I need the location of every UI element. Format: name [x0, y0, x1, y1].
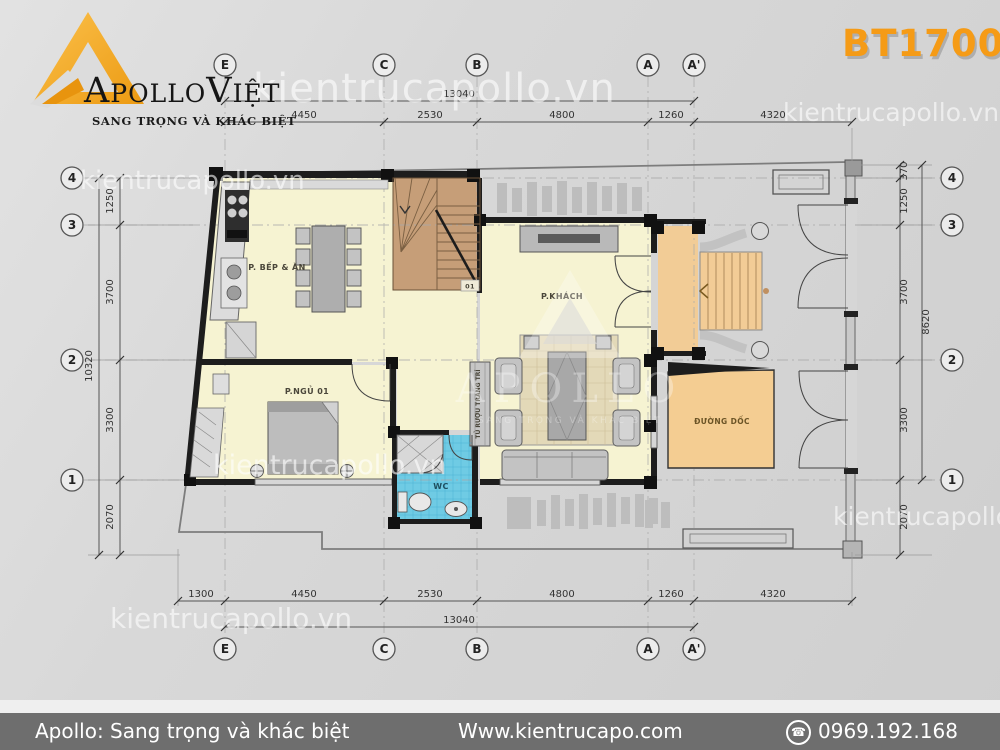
- rear-gate-leaf: [799, 371, 848, 420]
- brand-tagline: SANG TRỌNG VÀ KHÁC BIỆT: [92, 114, 296, 128]
- dim-right-2: 1250: [899, 188, 910, 213]
- brand-part-viet: Việt: [206, 71, 280, 111]
- grid-col-A-top: A: [643, 58, 653, 72]
- dim-bottom-5: 1260: [658, 589, 683, 600]
- dim-left-4: 2070: [105, 504, 116, 529]
- grid-row-4-right: 4: [948, 171, 956, 185]
- planter-box: [683, 529, 793, 548]
- dim-top-4: 1260: [658, 110, 683, 121]
- footer-website: Www.kientrucapo.com: [458, 719, 683, 743]
- project-code: BT17006: [842, 22, 1000, 65]
- grid-col-B-bottom: B: [472, 642, 481, 656]
- footer-bar: Apollo: Sang trọng và khác biệt Www.kien…: [0, 713, 1000, 750]
- dim-bottom-6: 4320: [760, 589, 785, 600]
- brand-name: ApolloViệt: [84, 74, 280, 109]
- dining-table: [312, 226, 345, 312]
- watermark-brand: APOLLO SANG TRỌNG VÀ KHÁC BIỆT: [420, 268, 720, 426]
- watermark-url: kientrucapollo.v: [833, 502, 1000, 531]
- dim-bottom-2: 4450: [291, 589, 316, 600]
- watermark-url: kientrucapollo.vn: [110, 602, 352, 635]
- side-gate-leaf: [798, 205, 848, 255]
- grid-col-E-bottom: E: [221, 642, 229, 656]
- toilet: [409, 493, 431, 511]
- tv: [538, 234, 600, 243]
- brand-part-apollo: Apollo: [84, 71, 206, 111]
- grid-row-2-left: 2: [68, 353, 76, 367]
- dim-left-2: 3700: [105, 279, 116, 304]
- side-gate-leaf: [798, 258, 848, 308]
- dim-right-total: 8620: [921, 309, 932, 334]
- dim-right-4: 3300: [899, 407, 910, 432]
- grid-row-3-right: 3: [948, 218, 956, 232]
- dim-left-3: 3300: [105, 407, 116, 432]
- watermark-triangle-icon: [515, 268, 625, 360]
- grid-col-A-bottom: A: [643, 642, 653, 656]
- floor-plan-page: 01: [0, 0, 1000, 750]
- grid-col-C-bottom: C: [380, 642, 389, 656]
- dim-bottom-4: 4800: [549, 589, 574, 600]
- wc-label: WC: [433, 482, 449, 491]
- footer-tagline: Apollo: Sang trọng và khác biệt: [35, 719, 349, 743]
- grid-row-4-left: 4: [68, 171, 76, 185]
- grid-row-1-right: 1: [948, 473, 956, 487]
- watermark-url: kientrucapollo.vn: [213, 450, 446, 481]
- grid-row-1-left: 1: [68, 473, 76, 487]
- footer-divider-strip: [0, 700, 1000, 713]
- apollo-viet-logo: ApolloViệt SANG TRỌNG VÀ KHÁC BIỆT: [26, 12, 326, 137]
- dim-right-1: 370: [899, 161, 910, 180]
- rear-gate-leaf: [799, 420, 848, 468]
- dim-right-3: 3700: [899, 279, 910, 304]
- sofa: [502, 450, 608, 480]
- watermark-url: kientrucapollo.vn: [80, 166, 305, 196]
- dim-bottom-3: 2530: [417, 589, 442, 600]
- grid-row-3-left: 3: [68, 218, 76, 232]
- dim-left-total: 10320: [84, 350, 95, 382]
- grid-col-A2-bottom: A': [688, 642, 701, 656]
- dim-top-5: 4320: [760, 110, 785, 121]
- watermark-brand-subtext: SANG TRỌNG VÀ KHÁC BIỆT: [420, 416, 720, 426]
- planter-box: [773, 170, 829, 194]
- grid-row-2-right: 2: [948, 353, 956, 367]
- footer-phone-number: 0969.192.168: [818, 719, 958, 743]
- dim-bottom-1: 1300: [188, 589, 213, 600]
- watermark-url: kientrucapollo.vn: [783, 98, 999, 127]
- watermark-brand-text: APOLLO: [420, 366, 720, 412]
- phone-icon: ☎: [786, 720, 811, 745]
- grid-col-A2-top: A': [688, 58, 701, 72]
- dim-bottom-total: 13040: [443, 615, 475, 626]
